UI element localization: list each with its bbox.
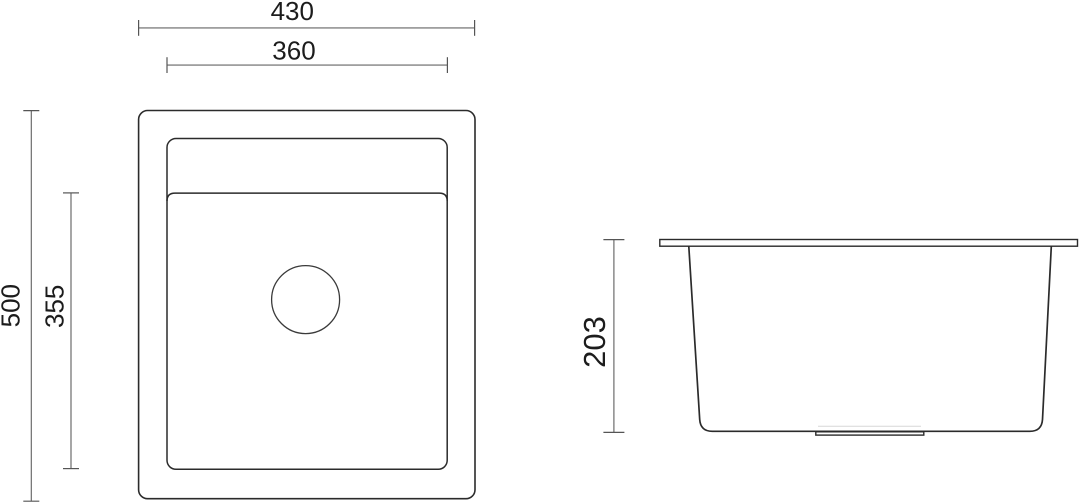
svg-text:355: 355 [39, 285, 69, 328]
svg-text:430: 430 [271, 0, 314, 26]
svg-text:500: 500 [0, 284, 26, 327]
svg-text:360: 360 [272, 35, 315, 65]
svg-text:203: 203 [577, 316, 612, 368]
